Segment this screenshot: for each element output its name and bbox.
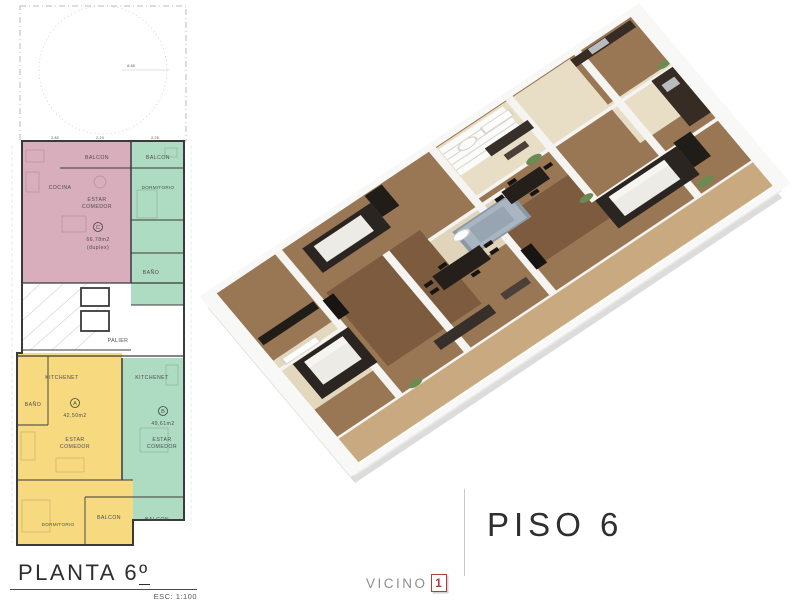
label-a-bano: BAÑO — [25, 401, 42, 408]
floor-caption: PISO 6 — [487, 506, 623, 544]
brand-name: VICINO — [366, 576, 428, 591]
brand-number-badge: 1 — [431, 574, 447, 592]
radius-dim: 6.45 — [127, 64, 134, 68]
label-a-comedor: COMEDOR — [60, 444, 90, 450]
dashed-boundary — [20, 6, 186, 141]
unit-top-green-zone — [131, 141, 184, 305]
label-a-estar: ESTAR — [65, 437, 84, 443]
label-g-dormitorio: DORMITORIO — [142, 185, 175, 190]
label-a-kitchenet: KITCHENET — [45, 375, 79, 381]
shaft-2 — [81, 311, 109, 331]
unit-a-area: 42,50m2 — [63, 413, 86, 419]
unit-c-id: C — [96, 225, 100, 231]
label-a-dormitorio: DORMITORIO — [42, 522, 75, 527]
plan-title: PLANTA 6º — [18, 560, 150, 586]
label-b-comedor: COMEDOR — [147, 444, 177, 450]
unit-a-id: A — [73, 401, 77, 407]
label-a-balcon: BALCON — [97, 515, 121, 521]
label-c-comedor: COMEDOR — [82, 204, 112, 210]
label-c-cocina: COCINA — [49, 185, 72, 191]
brand-logo: VICINO 1 — [366, 574, 447, 592]
label-g-bano: BAÑO — [143, 269, 160, 276]
plan-title-ordinal: º — [139, 563, 150, 585]
title-rule — [10, 589, 197, 590]
plan-title-text: PLANTA 6 — [18, 560, 139, 585]
plan-2d: 6.45 — [0, 0, 200, 600]
dim-2: 2.20 — [96, 136, 104, 140]
label-b-kitchenet: KITCHENET — [135, 375, 169, 381]
label-c-estar: ESTAR — [87, 197, 106, 203]
dim-3: 2.25 — [151, 136, 159, 140]
label-b-balcon: BALCON — [145, 517, 169, 523]
scale-label: ESC: 1:100 — [90, 592, 197, 600]
unit-c-area: 66,78m2 — [86, 237, 109, 243]
page: 6.45 — [0, 0, 800, 600]
unit-c-note: (duplex) — [87, 245, 109, 251]
shaft-1 — [81, 288, 109, 306]
caption-divider — [464, 489, 465, 576]
label-g-balcon: BALCON — [146, 155, 170, 161]
dim-1: 2.80 — [51, 136, 59, 140]
plan3d-group — [208, 10, 782, 470]
unit-b-id: B — [161, 409, 165, 415]
label-palier: PALIER — [108, 338, 129, 344]
unit-b-area: 49,61m2 — [151, 421, 174, 427]
label-b-estar: ESTAR — [152, 437, 171, 443]
label-c-balcon: BALCON — [85, 155, 109, 161]
